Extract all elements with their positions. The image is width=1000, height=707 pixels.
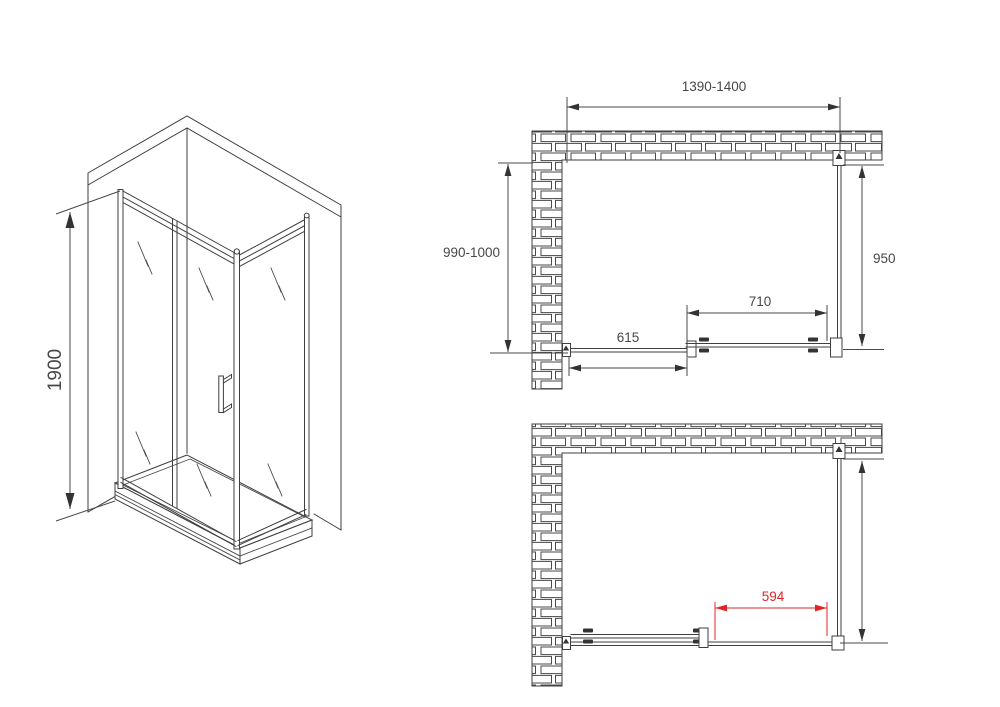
side-panel-open [832,444,845,651]
door-handle [219,375,232,413]
technical-drawing-page: 1900 [0,0,1000,707]
side-panel-closed [833,151,845,339]
dimension-label-iso-height: 1900 [45,349,66,391]
plan-view-open: 594 [532,424,888,686]
dimension-label-depth: 990-1000 [443,245,500,260]
shower-tray [115,455,312,564]
dimension-label-overall-width: 1390-1400 [682,79,747,94]
dimension-sliding-door: 710 [687,294,827,341]
dimension-label-fixed-panel: 615 [617,330,640,345]
dimension-label-sliding-door: 710 [749,294,772,309]
drawing-canvas: 1900 [0,0,1000,707]
sliding-door-closed [686,338,842,358]
back-walls [88,116,341,530]
dimension-side-panel: 950 [843,165,896,350]
dimension-label-opening: 594 [762,589,785,604]
sliding-door-open [571,628,708,648]
dimension-opening: 594 [715,589,827,640]
plan-view-closed: 1390-1400 990-1000 950 710 [443,79,896,389]
dimension-side-unlabeled [840,459,888,643]
dimension-iso-height: 1900 [45,191,120,521]
isometric-view: 1900 [45,116,341,564]
dimension-label-side-panel: 950 [873,251,896,266]
glass-shine-marks [136,242,285,496]
dimension-fixed-panel: 615 [569,330,687,376]
